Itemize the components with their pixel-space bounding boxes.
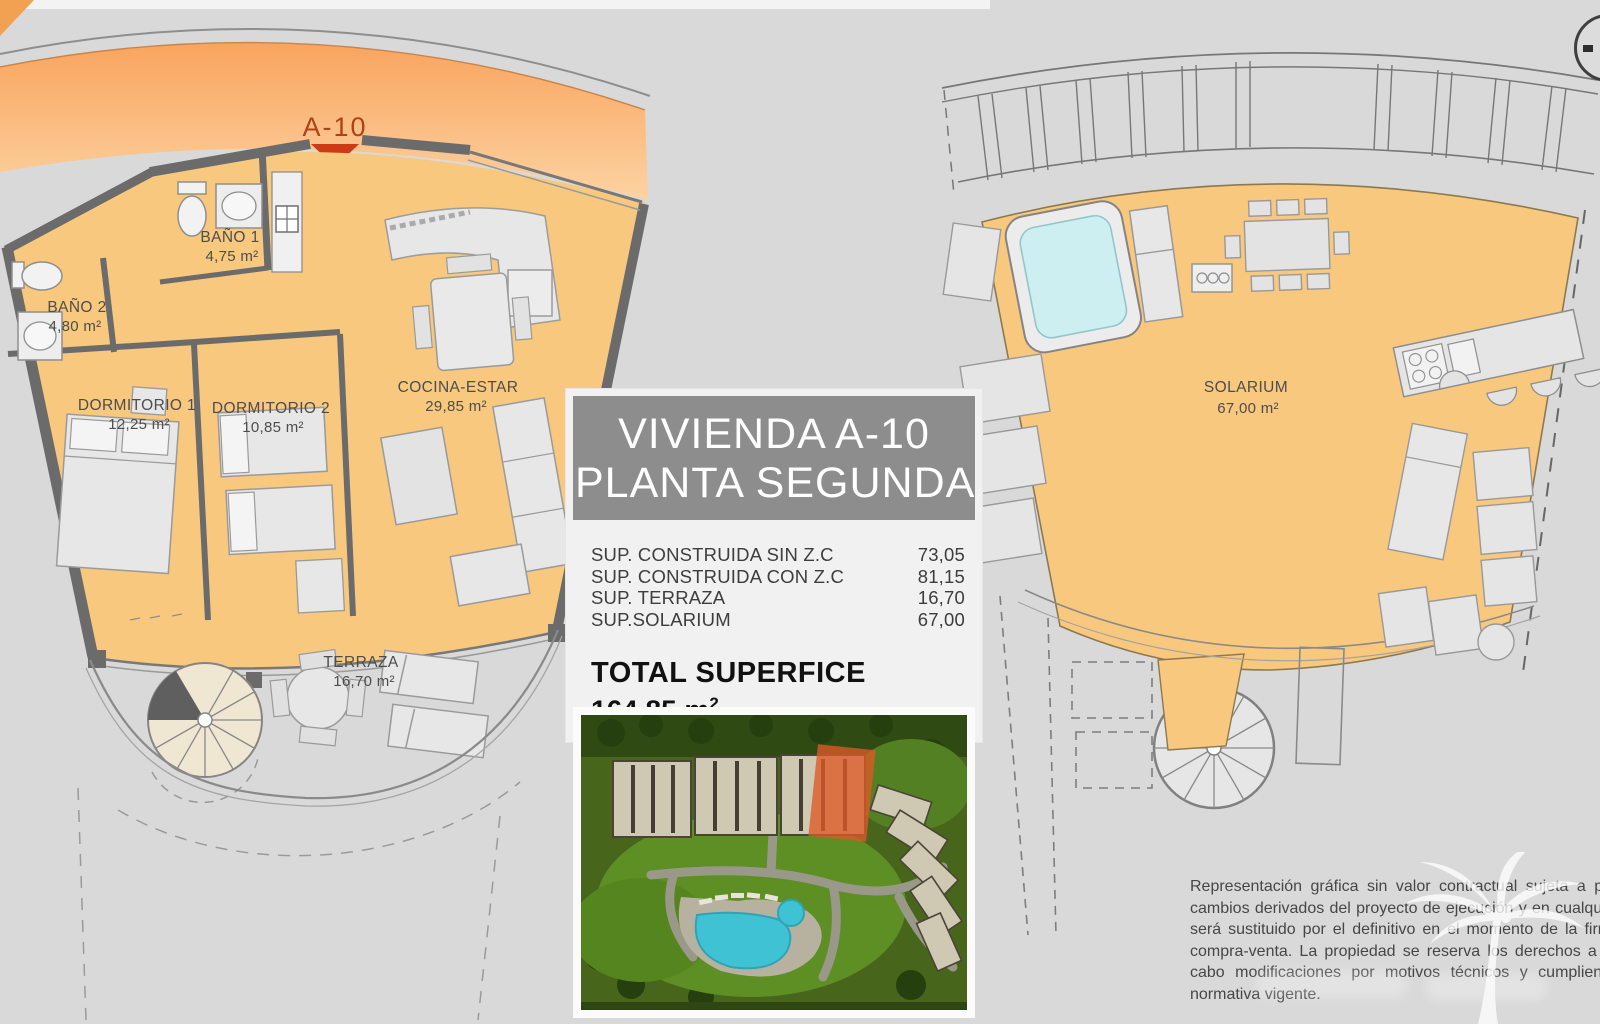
room-label: SOLARIUM [1204,379,1288,396]
room-label: COCINA-ESTAR [398,379,519,396]
aerial-render [581,715,967,1010]
jacuzzi [1002,198,1144,356]
surface-label: SUP. CONSTRUIDA SIN Z.C [591,544,834,566]
surface-table: SUP. CONSTRUIDA SIN Z.C 73,05 SUP. CONST… [573,520,975,630]
pergola-inner-arc [958,148,1594,182]
disclaimer-line: será sustituido por el definitivo en el … [1190,919,1600,941]
pergola-outer-arc [942,53,1598,88]
room-label: DORMITORIO 1 [78,397,196,414]
apartment-floor-plan: A-10 [0,20,660,1024]
disclaimer: Representación gráfica sin valor contrac… [1190,876,1600,1005]
room-area: 4,80 m² [49,318,102,335]
surface-row: SUP. TERRAZA 16,70 [591,587,965,609]
surface-row: SUP. CONSTRUIDA CON Z.C 81,15 [591,566,965,588]
disclaimer-line: cabo modificaciones por motivos técnicos… [1190,962,1600,984]
surface-value: 81,15 [918,566,965,588]
unit-marker-label: A-10 [302,112,367,142]
surface-value: 73,05 [918,544,965,566]
surface-label: SUP. TERRAZA [591,587,725,609]
room-area: 16,70 m² [333,673,395,690]
disclaimer-line: normativa vigente. [1190,984,1600,1006]
room-area: 10,85 m² [242,419,304,436]
photo-bottom-strip [581,1002,967,1010]
room-label: DORMITORIO 2 [212,400,330,417]
pergola-left-edge [944,90,954,195]
disclaimer-line: cambios derivados del proyecto de ejecuc… [1190,898,1600,920]
room-area: 12,25 m² [108,416,170,433]
title-floor: PLANTA SEGUNDA [575,459,973,508]
surface-label: SUP. CONSTRUIDA CON Z.C [591,566,844,588]
bath2-toilet-icon [12,262,62,290]
surface-label: SUP.SOLARIUM [591,609,731,631]
solarium-floor-plan: SOLARIUM 67,00 m² [930,30,1600,1024]
dashed-right-boundary [478,816,500,1020]
title-unit: VIVIENDA A-10 [575,410,973,459]
highlighted-unit [808,744,875,842]
room-area: 67,00 m² [1217,400,1279,417]
dashed-curve-below [118,782,520,856]
room-label: TERRAZA [323,654,398,671]
disclaimer-line: Representación gráfica sin valor contrac… [1190,876,1600,898]
plan-sheet: A-10 [0,0,1600,1024]
dashed-left-boundary [78,788,86,1020]
room-area: 4,75 m² [206,248,259,265]
top-edge-sliver [0,0,990,9]
compass-needle [1583,45,1593,52]
bath1-toilet-icon [178,182,206,236]
surface-value: 16,70 [918,587,965,609]
bbq-unit [1192,264,1232,292]
pergola-slats [978,61,1566,180]
surface-row: SUP. CONSTRUIDA SIN Z.C 73,05 [591,544,965,566]
bath1-closet [272,172,302,272]
surface-row: SUP.SOLARIUM 67,00 [591,609,965,631]
room-label: BAÑO 1 [200,229,259,246]
round-pool [778,900,804,926]
room-area: 29,85 m² [425,398,487,415]
room-label: BAÑO 2 [47,299,106,316]
title-box: VIVIENDA A-10 PLANTA SEGUNDA [573,396,975,520]
bath1-sink-icon [216,184,262,228]
total-label: TOTAL SUPERFICE [591,658,965,688]
surface-value: 67,00 [918,609,965,631]
dorm1-bed [57,414,179,573]
info-panel: VIVIENDA A-10 PLANTA SEGUNDA SUP. CONSTR… [566,389,982,742]
disclaimer-line: compra-venta. La propiedad se reserva lo… [1190,941,1600,963]
aerial-render-frame [573,707,975,1018]
